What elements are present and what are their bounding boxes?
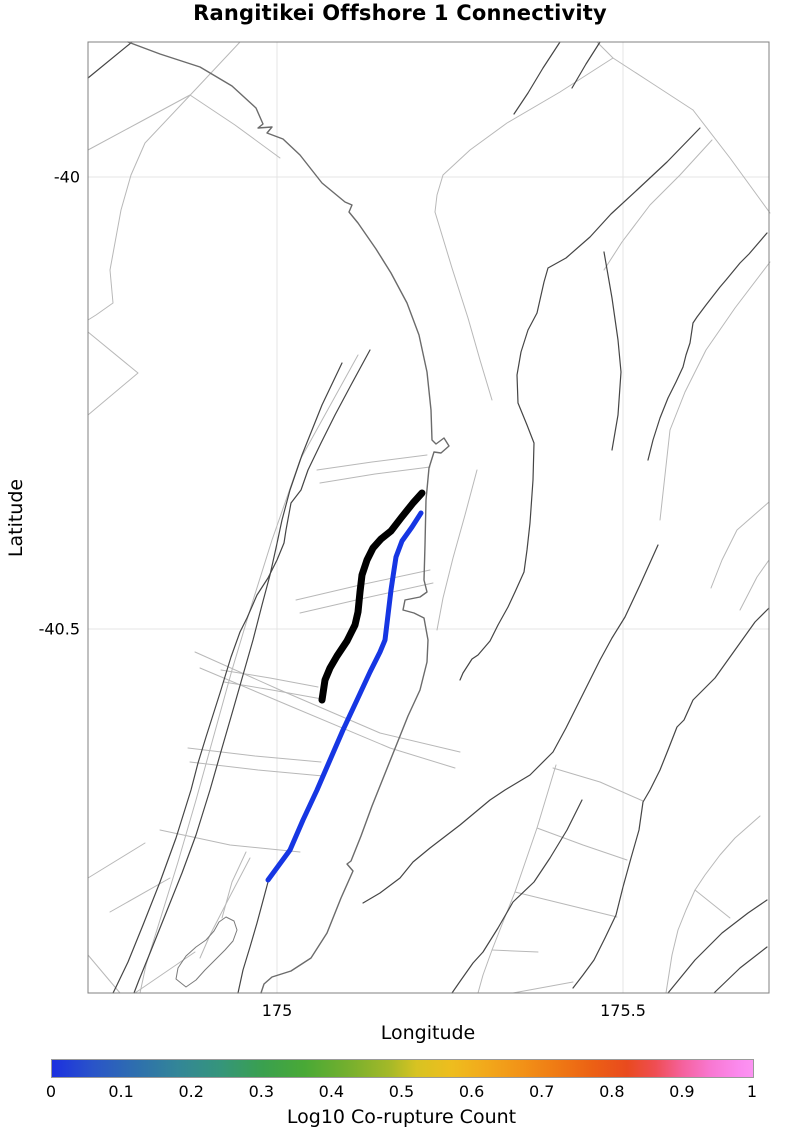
lake-outline (176, 917, 237, 987)
colorbar-tick-label: 0.9 (669, 1082, 694, 1101)
faults-light (513, 982, 573, 993)
y-axis-label: Latitude (5, 479, 27, 557)
faults-light (320, 467, 430, 483)
faults-light (553, 768, 643, 801)
faults-dark (238, 882, 268, 993)
faults-light (435, 212, 492, 400)
faults-light (478, 765, 556, 993)
colorbar-tick-label: 0.1 (108, 1082, 133, 1101)
faults-light (740, 560, 769, 610)
faults-dark (604, 252, 621, 450)
faults-dark (452, 800, 582, 993)
colorbar-tick-label: 1 (747, 1082, 757, 1101)
colorbar-tick-label: 0 (46, 1082, 56, 1101)
faults-light (537, 828, 627, 860)
colorbar-tick-label: 0.8 (599, 1082, 624, 1101)
faults-light (88, 843, 145, 878)
colorbar-tick-label: 0.5 (389, 1082, 414, 1101)
figure: Rangitikei Offshore 1 Connectivity -40-4… (0, 0, 800, 1140)
colorbar-tick-label: 0.6 (459, 1082, 484, 1101)
faults-dark (363, 545, 658, 903)
faults-dark (572, 42, 600, 88)
faults-light (435, 58, 613, 212)
colorbar-tick-label: 0.7 (529, 1082, 554, 1101)
faults-dark (648, 233, 767, 460)
y-tick-label: -40 (54, 168, 80, 187)
faults-light (437, 470, 477, 630)
faults-light (190, 762, 323, 776)
faults-dark (88, 42, 132, 78)
faults-light (317, 455, 427, 470)
x-tick-label: 175.5 (600, 1001, 646, 1020)
faults-light (110, 878, 170, 912)
faults-dark (134, 363, 342, 993)
y-tick-label: -40.5 (39, 620, 80, 639)
faults-light (711, 502, 769, 588)
faults-light (222, 852, 246, 918)
faults-light (597, 42, 693, 110)
faults-dark (573, 608, 769, 988)
faults-light (693, 110, 770, 213)
faults-light (695, 890, 730, 918)
colorbar-tick-label: 0.4 (319, 1082, 344, 1101)
faults-light (515, 892, 617, 917)
faults-dark (460, 128, 700, 680)
colorbar-label: Log10 Co-rupture Count (287, 1106, 516, 1128)
corupture-fault (268, 513, 421, 880)
faults-dark (668, 900, 767, 993)
faults-dark (514, 42, 560, 114)
faults-light (160, 830, 300, 852)
colorbar-tick-label: 0.3 (249, 1082, 274, 1101)
faults-dark (714, 947, 767, 993)
faults-light (492, 950, 538, 952)
faults-light (88, 42, 240, 320)
faults-light (221, 670, 318, 687)
x-tick-label: 175 (262, 1001, 293, 1020)
x-axis-label: Longitude (381, 1022, 476, 1044)
faults-light (88, 332, 138, 415)
colorbar-tick-label: 0.2 (178, 1082, 203, 1101)
map-plot (0, 0, 800, 1010)
colorbar-gradient (51, 1059, 754, 1078)
faults-light (660, 262, 770, 520)
